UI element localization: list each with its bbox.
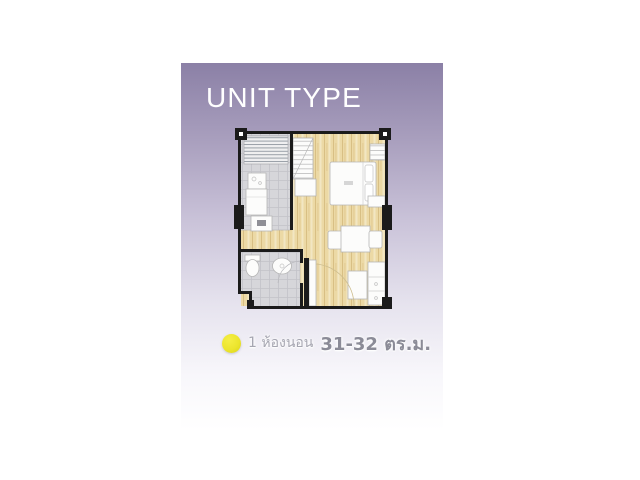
dining-chair: [328, 231, 342, 249]
floor-plan-image: [234, 127, 396, 322]
floor-plan: [234, 127, 396, 322]
structural-column: [382, 205, 392, 230]
dining-table: [341, 226, 370, 252]
wardrobe: [293, 138, 313, 179]
refrigerator: [246, 189, 267, 215]
pillow: [365, 165, 373, 182]
washing-machine: [251, 216, 272, 231]
page-title: UNIT TYPE: [206, 82, 362, 114]
entrance-door: [309, 260, 316, 306]
legend-area-label: 31-32 ตร.ม.: [320, 329, 431, 358]
sink-unit: [248, 173, 266, 189]
legend: 1 ห้องนอน 31-32 ตร.ม.: [222, 331, 431, 355]
structural-column: [382, 297, 392, 309]
corner-marker: [379, 128, 391, 140]
dining-chair: [369, 231, 382, 248]
toilet: [245, 255, 260, 277]
coffee-table: [348, 271, 367, 299]
shelf: [370, 144, 385, 160]
bedroom-door: [295, 179, 316, 196]
corner-marker: [235, 128, 247, 140]
kitchen-counter: [244, 136, 288, 164]
legend-bedrooms-label: 1 ห้องนอน: [248, 332, 313, 354]
screen: UNIT TYPE: [0, 0, 640, 480]
basin: [273, 258, 292, 274]
yellow-bullet-icon: [222, 334, 241, 353]
structural-column: [234, 205, 244, 229]
structural-column: [247, 300, 254, 309]
